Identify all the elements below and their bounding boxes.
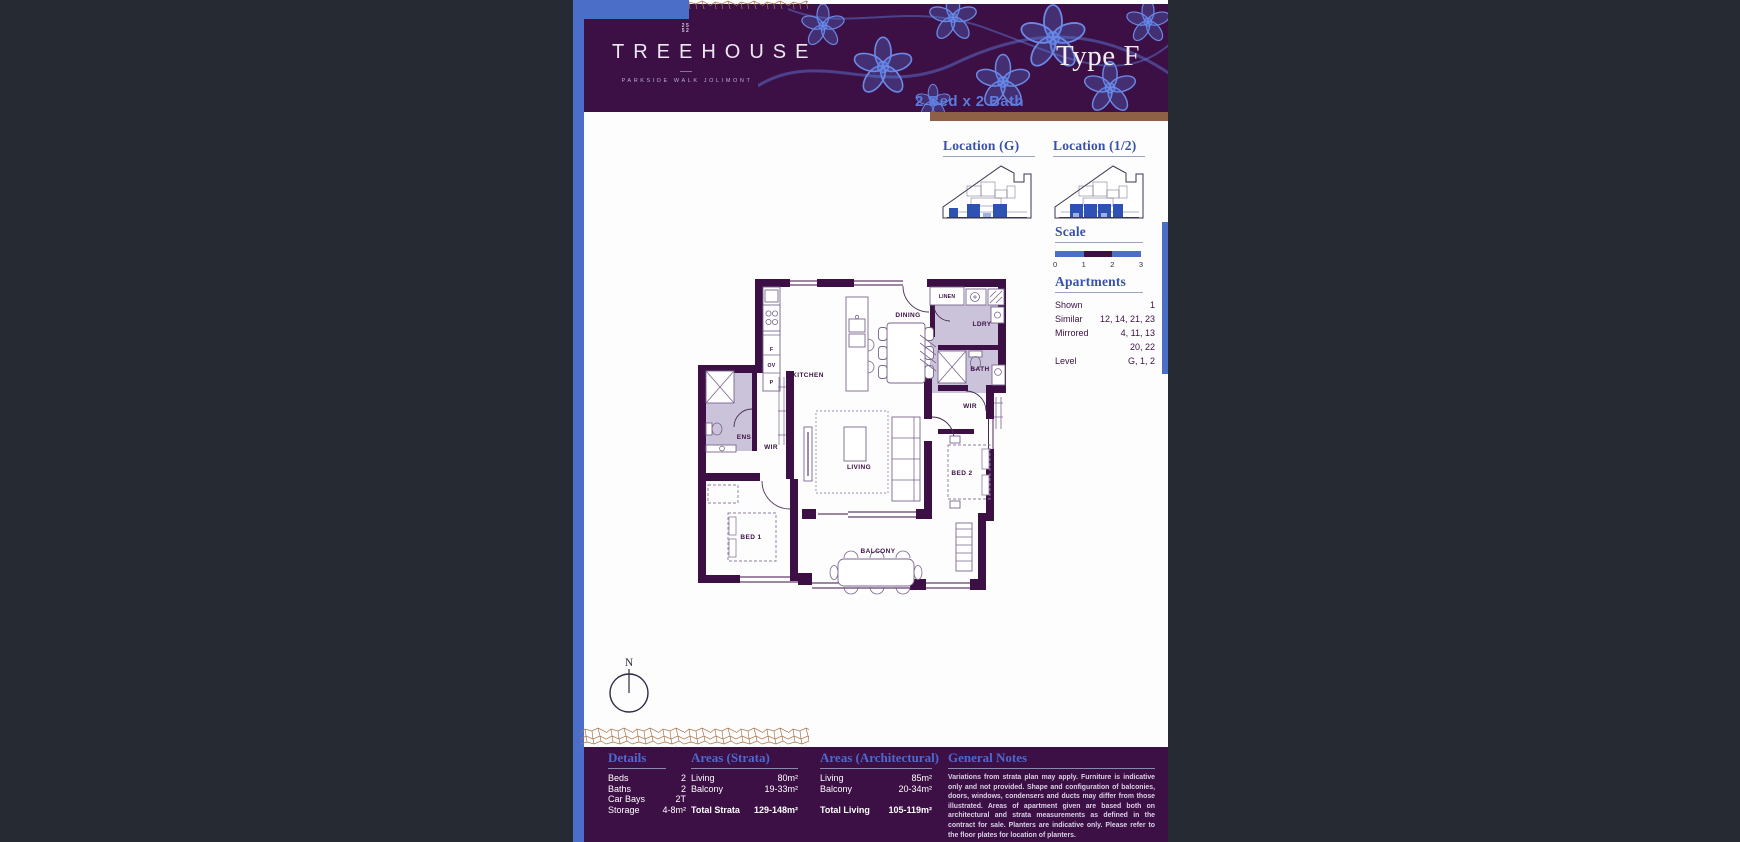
- apartments-underline: [1055, 292, 1143, 293]
- details-heading: Details: [608, 750, 646, 766]
- details-underline: [608, 768, 666, 769]
- logo-divider: [680, 71, 692, 72]
- scale-heading: Scale: [1055, 224, 1086, 240]
- apartments-row: Mirrored4, 11, 13: [1055, 326, 1155, 340]
- brown-accent-bar: [930, 112, 1168, 121]
- footer-panel: Details Beds2 Baths2 Car Bays2T Storage4…: [584, 747, 1168, 842]
- spacer-row: [820, 794, 932, 805]
- room-label-bed2: BED 2: [951, 470, 972, 477]
- bed-bath-subtitle: 2 Bed x 2 Bath: [915, 93, 1024, 110]
- left-accent-bar: [573, 0, 584, 842]
- crackle-strip-bottom: [580, 727, 809, 746]
- location-g-underline: [943, 156, 1035, 157]
- scale-tick: 0: [1053, 260, 1057, 269]
- svg-text:N: N: [625, 657, 634, 669]
- treehouse-logo: 25 52 TREEHOUSE PARKSIDE WALK JOLIMONT: [603, 24, 769, 84]
- plan-type-title: Type F: [1056, 40, 1140, 73]
- location-g-diagram: [941, 162, 1033, 220]
- room-label-bath: BATH: [970, 366, 989, 373]
- desktop-background: { "header": { "brand": "TREEHOUSE", "tag…: [0, 0, 1740, 842]
- room-label-kitchen: KITCHEN: [792, 372, 824, 379]
- right-accent-bar: [1162, 222, 1168, 374]
- location-12-underline: [1053, 156, 1145, 157]
- details-row: Beds2: [608, 773, 686, 784]
- scale-ticks: 0 1 2 3: [1053, 260, 1143, 269]
- areas-strata-underline: [691, 768, 798, 769]
- scale-underline: [1055, 242, 1143, 243]
- areas-strata-row: Living80m²: [691, 773, 798, 784]
- appliance-label-pantry: P: [770, 380, 774, 386]
- general-notes-underline: [948, 768, 1155, 769]
- apartments-heading: Apartments: [1055, 274, 1126, 290]
- areas-architectural-heading: Areas (Architectural): [820, 750, 939, 766]
- apartments-row: LevelG, 1, 2: [1055, 354, 1155, 368]
- areas-architectural-row: Balcony20-34m²: [820, 784, 932, 795]
- floor-plan: KITCHEN DINING LIVING BALCONY BED 1 BED …: [698, 277, 1018, 609]
- location-g-heading: Location (G): [943, 138, 1019, 154]
- north-compass-icon: N: [609, 654, 649, 714]
- room-label-linen: LINEN: [939, 294, 956, 300]
- location-12-heading: Location (1/2): [1053, 138, 1136, 154]
- apartments-table: Shown1 Similar12, 14, 21, 23 Mirrored4, …: [1055, 298, 1155, 368]
- logo-mark-icon: 25 52: [603, 24, 769, 34]
- brand-tagline: PARKSIDE WALK JOLIMONT: [603, 78, 769, 84]
- page-header: 25 52 TREEHOUSE PARKSIDE WALK JOLIMONT T…: [573, 4, 1168, 112]
- blue-corner-rect: [573, 0, 689, 19]
- details-row: Car Bays2T: [608, 794, 686, 805]
- room-label-dining: DINING: [895, 312, 920, 319]
- apartments-row: Shown1: [1055, 298, 1155, 312]
- areas-architectural-row: Living85m²: [820, 773, 932, 784]
- scale-tick: 2: [1110, 260, 1114, 269]
- room-label-living: LIVING: [847, 464, 871, 471]
- room-label-wir-left: WIR: [764, 444, 778, 451]
- scale-tick: 1: [1082, 260, 1086, 269]
- general-notes-body: Variations from strata plan may apply. F…: [948, 773, 1155, 840]
- room-label-wir-right: WIR: [963, 403, 977, 410]
- room-label-ldry: LDRY: [972, 321, 991, 328]
- spacer-row: [691, 794, 798, 805]
- room-label-bed1: BED 1: [740, 534, 761, 541]
- apartments-row: 20, 22: [1055, 340, 1155, 354]
- areas-architectural-underline: [820, 768, 932, 769]
- location-12-diagram: [1053, 162, 1145, 220]
- general-notes-heading: General Notes: [948, 750, 1027, 766]
- crackle-strip-top: [684, 0, 808, 9]
- scale-tick: 3: [1139, 260, 1143, 269]
- areas-strata-total-row: Total Strata129-148m²: [691, 805, 798, 816]
- appliance-label-fridge: F: [770, 347, 773, 353]
- scale-bar: [1055, 251, 1141, 257]
- room-label-ens: ENS: [737, 434, 752, 441]
- areas-strata-heading: Areas (Strata): [691, 750, 770, 766]
- details-row: Storage4-8m²: [608, 805, 686, 816]
- brochure-page: 25 52 TREEHOUSE PARKSIDE WALK JOLIMONT T…: [573, 0, 1168, 842]
- areas-architectural-total-row: Total Living105-119m²: [820, 805, 932, 816]
- areas-strata-row: Balcony19-33m²: [691, 784, 798, 795]
- brand-name: TREEHOUSE: [603, 41, 769, 64]
- apartments-row: Similar12, 14, 21, 23: [1055, 312, 1155, 326]
- room-label-balcony: BALCONY: [861, 548, 896, 555]
- details-row: Baths2: [608, 784, 686, 795]
- appliance-label-oven: OV: [768, 363, 776, 369]
